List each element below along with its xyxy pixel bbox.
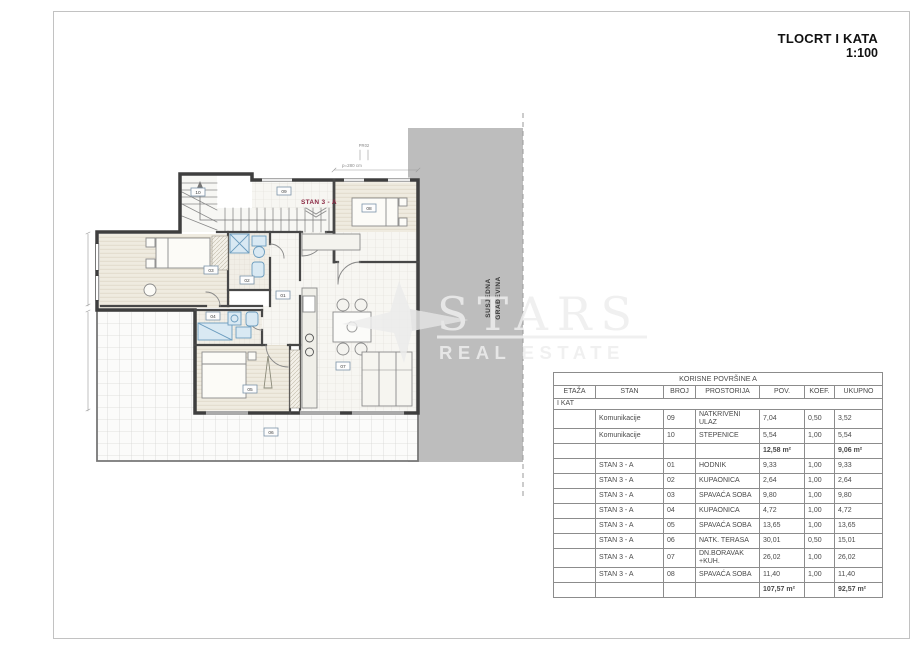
table-row: STAN 3 - A01HODNIK9,331,009,33: [554, 459, 883, 474]
room-tag-05: 05: [243, 385, 257, 393]
parapet-note: p=280 cm: [342, 163, 362, 168]
section-label: I KAT: [554, 399, 883, 410]
svg-text:01: 01: [280, 293, 286, 299]
toilet-02: [252, 262, 264, 277]
watermark-brand: STARS: [437, 287, 641, 341]
svg-text:10: 10: [195, 190, 201, 196]
watermark-divider: [437, 336, 647, 339]
wardrobe-hatch: [212, 236, 228, 270]
table-row: STAN 3 - A07DN.BORAVAK +KUH.26,021,0026,…: [554, 549, 883, 568]
room-tag-03: 03: [204, 266, 218, 274]
floor-plan: p=280 cm PR02 STAN 3 - A 10 09 08 03 02 …: [86, 143, 420, 461]
svg-text:05: 05: [247, 387, 253, 393]
bed-03: [146, 238, 210, 268]
table-row: STAN 3 - A04KUPAONICA4,721,004,72: [554, 504, 883, 519]
table-row: STAN 3 - A03SPAVAĆA SOBA9,801,009,80: [554, 489, 883, 504]
room-tag-07: 07: [336, 362, 350, 370]
svg-text:09: 09: [281, 189, 287, 195]
svg-text:07: 07: [340, 364, 346, 370]
table-title: KORISNE POVRŠINE A: [554, 373, 883, 386]
window-mark: PR02: [359, 143, 370, 148]
washer-02: [254, 247, 265, 258]
sink-04: [236, 327, 251, 338]
svg-text:06: 06: [268, 430, 274, 436]
area-table-body: KORISNE POVRŠINE A ETAŽA STAN BROJ PROST…: [554, 373, 883, 598]
table-header-row: ETAŽA STAN BROJ PROSTORIJA POV. KOEF. UK…: [554, 386, 883, 399]
room-tag-04: 04: [206, 312, 220, 320]
room-tag-01: 01: [276, 291, 290, 299]
toilet-04: [246, 312, 258, 326]
table-row: Komunikacije10STEPENICE5,541,005,54: [554, 429, 883, 444]
table-row: STAN 3 - A08SPAVAĆA SOBA11,401,0011,40: [554, 568, 883, 583]
table-row: STAN 3 - A02KUPAONICA2,641,002,64: [554, 474, 883, 489]
table-row: Komunikacije09NATKRIVENI ULAZ7,040,503,5…: [554, 410, 883, 429]
table-sum-row: 107,57 m²92,57 m²: [554, 583, 883, 598]
table-section-row: I KAT: [554, 399, 883, 410]
washer-04: [228, 312, 241, 325]
table-row: STAN 3 - A06NATK. TERASA30,010,5015,01: [554, 534, 883, 549]
apartment-label: STAN 3 - A: [301, 199, 337, 206]
room-tag-09: 09: [277, 187, 291, 195]
svg-text:08: 08: [366, 206, 372, 212]
closet-hatch: [290, 350, 300, 408]
svg-text:04: 04: [210, 314, 216, 320]
svg-text:03: 03: [208, 268, 214, 274]
side-table: [144, 284, 156, 296]
plan-sheet: { "page": { "title": "TLOCRT I KATA", "s…: [0, 0, 920, 650]
table-title-row: KORISNE POVRŠINE A: [554, 373, 883, 386]
watermark-tagline: REAL ESTATE: [439, 342, 625, 363]
table-row: STAN 3 - A05SPAVAĆA SOBA13,651,0013,65: [554, 519, 883, 534]
svg-text:02: 02: [244, 278, 250, 284]
room-tag-06: 06: [264, 428, 278, 436]
sink-02: [252, 236, 266, 246]
bathtub-04: [198, 323, 232, 340]
shower-02: [230, 234, 249, 253]
room-tag-10: 10: [191, 188, 205, 196]
room-tag-08: 08: [362, 204, 376, 212]
kitchen-counter: [302, 288, 317, 408]
room-tag-02: 02: [240, 276, 254, 284]
area-table: KORISNE POVRŠINE A ETAŽA STAN BROJ PROST…: [553, 372, 882, 598]
kitchen-cabinets: [302, 234, 360, 250]
table-sum-row: 12,58 m²9,06 m²: [554, 444, 883, 459]
